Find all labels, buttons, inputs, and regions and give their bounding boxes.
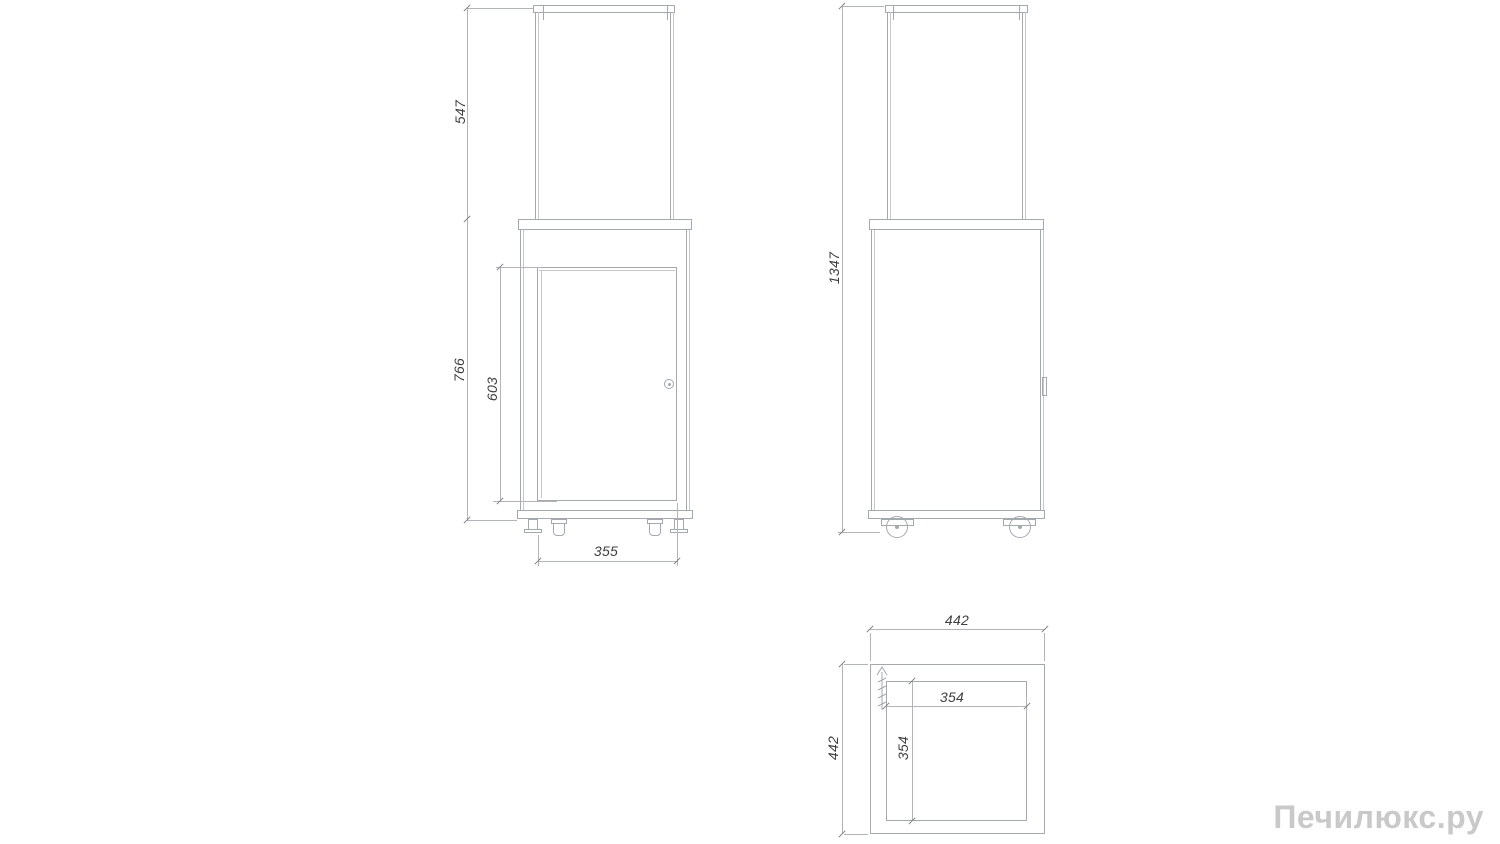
dim-442-top-label: 442 [945,612,969,628]
dim-442-left-line [842,664,843,834]
dim-354-h-line [886,706,1027,707]
dim-354-h-label: 354 [940,689,964,705]
dim-442-top-line [870,629,1045,630]
dim-442-top-extension-left [870,633,871,661]
dim-354-v-line [912,681,913,821]
dim-442-left-extension-bottom [844,834,868,835]
dim-442-left-label: 442 [825,736,841,760]
top-view: 442 354 354 442 [0,0,1500,844]
watermark: Печилюкс.ру [1273,799,1484,836]
dim-442-top-tick-right [1041,625,1048,632]
technical-drawing-canvas: 547 766 603 355 [0,0,1500,844]
dim-442-left-extension-top [844,664,868,665]
dim-354-v-label: 354 [895,736,911,760]
dim-442-top-extension-right [1044,633,1045,661]
